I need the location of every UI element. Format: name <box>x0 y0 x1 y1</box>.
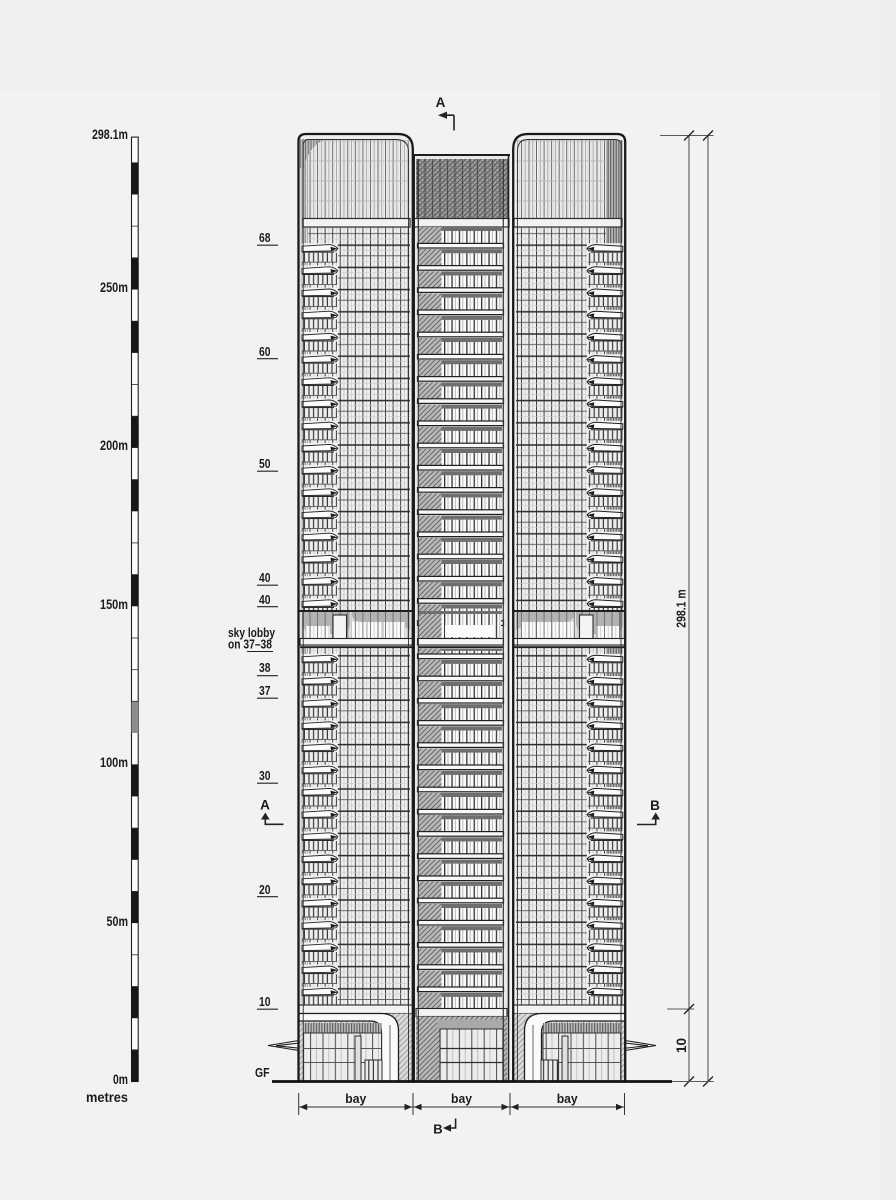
svg-text:100m: 100m <box>100 755 128 770</box>
svg-text:0m: 0m <box>113 1072 128 1087</box>
svg-text:60: 60 <box>259 344 271 359</box>
svg-text:metres: metres <box>86 1090 128 1105</box>
svg-text:bay: bay <box>345 1091 367 1106</box>
svg-text:A: A <box>436 95 446 110</box>
svg-text:20: 20 <box>259 882 271 897</box>
svg-text:200m: 200m <box>100 438 128 453</box>
svg-text:298.1m: 298.1m <box>92 127 128 142</box>
svg-text:on 37–38: on 37–38 <box>228 637 272 652</box>
svg-text:50: 50 <box>259 456 271 471</box>
svg-text:30: 30 <box>259 768 271 783</box>
svg-text:298.1 m: 298.1 m <box>674 589 689 628</box>
svg-text:B: B <box>433 1122 442 1137</box>
svg-text:B: B <box>650 798 660 813</box>
svg-text:40: 40 <box>259 592 271 607</box>
svg-text:50m: 50m <box>107 914 129 929</box>
svg-text:10: 10 <box>674 1038 689 1053</box>
svg-text:bay: bay <box>557 1091 579 1106</box>
svg-text:10: 10 <box>259 994 271 1009</box>
svg-text:40: 40 <box>259 570 271 585</box>
svg-text:68: 68 <box>259 230 271 245</box>
svg-text:A: A <box>260 798 270 813</box>
svg-text:GF: GF <box>255 1065 270 1080</box>
svg-text:bay: bay <box>451 1091 473 1106</box>
svg-text:38: 38 <box>259 660 271 675</box>
svg-text:150m: 150m <box>100 597 128 612</box>
svg-text:37: 37 <box>259 683 271 698</box>
svg-text:250m: 250m <box>100 280 128 295</box>
